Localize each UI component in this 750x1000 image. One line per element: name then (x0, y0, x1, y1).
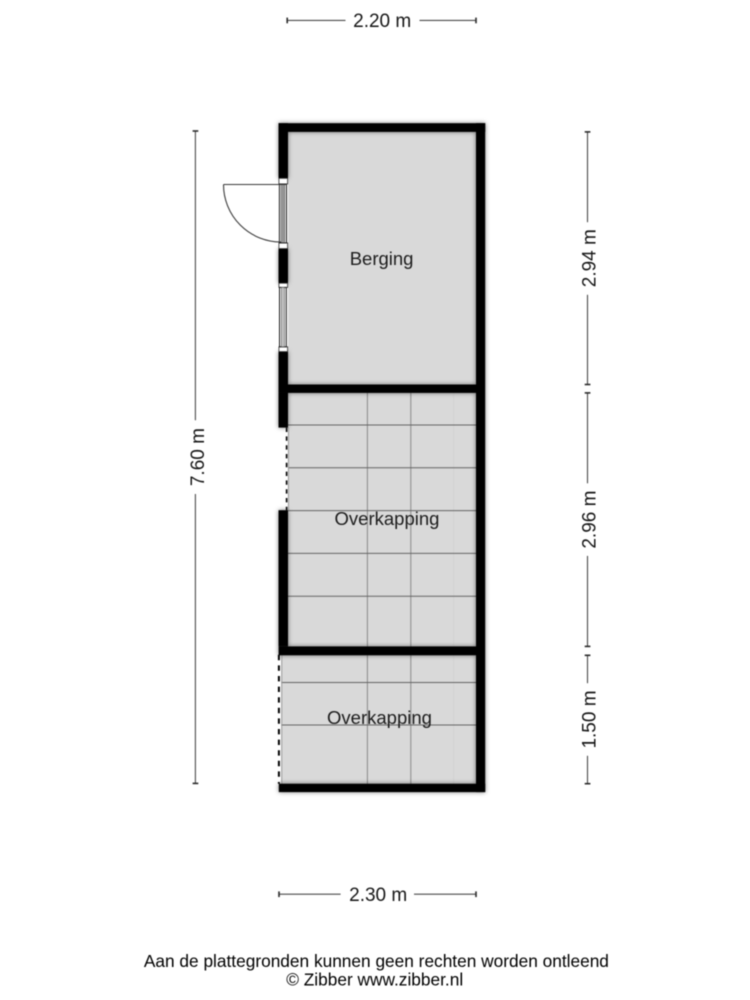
svg-text:2.20 m: 2.20 m (353, 11, 411, 32)
svg-text:1.50 m: 1.50 m (580, 690, 601, 748)
svg-text:Overkapping: Overkapping (335, 508, 440, 529)
svg-text:7.60 m: 7.60 m (188, 428, 209, 486)
svg-text:Berging: Berging (350, 248, 414, 269)
svg-text:Overkapping: Overkapping (327, 707, 432, 728)
svg-text:2.30 m: 2.30 m (349, 885, 407, 906)
svg-text:Aan de plattegronden kunnen ge: Aan de plattegronden kunnen geen rechten… (144, 951, 609, 971)
svg-text:2.96 m: 2.96 m (580, 491, 601, 549)
svg-text:© Zibber www.zibber.nl: © Zibber www.zibber.nl (286, 969, 463, 989)
svg-text:2.94 m: 2.94 m (580, 229, 601, 287)
